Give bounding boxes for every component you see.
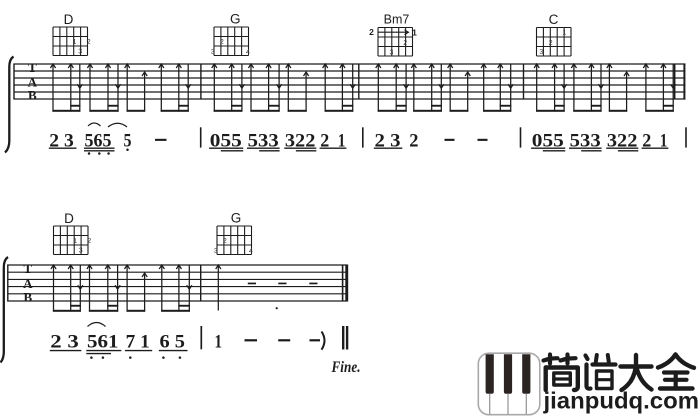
svg-text:4: 4 (246, 49, 250, 56)
svg-text:6 5: 6 5 (160, 332, 186, 353)
svg-text:2: 2 (87, 238, 91, 245)
svg-text:1: 1 (412, 28, 417, 38)
svg-text:1: 1 (563, 30, 567, 37)
svg-text:1: 1 (73, 39, 77, 46)
svg-text:3: 3 (539, 49, 543, 56)
svg-text:4: 4 (249, 248, 253, 255)
svg-text:Bm7: Bm7 (384, 13, 410, 27)
svg-text:B: B (28, 88, 37, 103)
svg-text:T: T (28, 60, 37, 75)
svg-text:2: 2 (369, 27, 374, 37)
svg-text:G: G (231, 211, 242, 226)
svg-text:D: D (64, 12, 74, 27)
svg-text:T: T (23, 261, 32, 276)
svg-text:7 1: 7 1 (126, 332, 150, 353)
svg-text:2 3: 2 3 (50, 332, 79, 353)
svg-text:1: 1 (215, 332, 223, 353)
svg-text:561: 561 (87, 332, 119, 353)
svg-text:3: 3 (211, 49, 215, 56)
svg-text:3: 3 (78, 49, 82, 56)
svg-text:2: 2 (223, 238, 227, 245)
svg-text:2: 2 (87, 39, 91, 46)
svg-text:5: 5 (124, 131, 132, 152)
svg-text:2: 2 (220, 39, 224, 46)
svg-text:2: 2 (409, 131, 418, 152)
svg-text:2: 2 (403, 40, 407, 47)
svg-text:G: G (230, 12, 241, 27)
svg-text:3: 3 (79, 248, 83, 255)
svg-text:2: 2 (549, 40, 553, 47)
svg-text:1: 1 (73, 238, 77, 245)
svg-text:3: 3 (390, 50, 394, 57)
svg-text:3: 3 (214, 248, 218, 255)
svg-text:D: D (64, 211, 74, 226)
svg-text:C: C (549, 12, 559, 27)
svg-text:Fine.: Fine. (331, 359, 361, 376)
svg-text:B: B (23, 289, 32, 304)
